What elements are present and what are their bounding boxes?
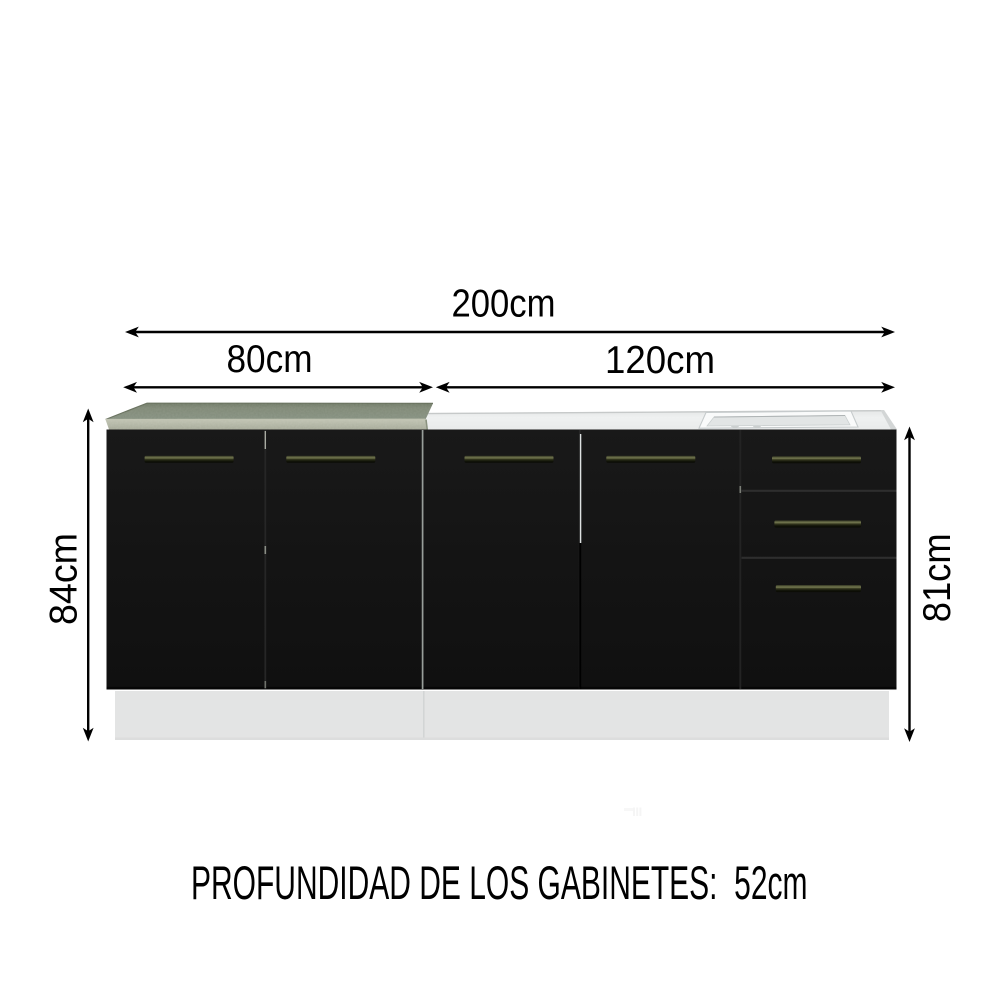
- svg-text:84cm: 84cm: [43, 533, 86, 625]
- svg-text:120cm: 120cm: [605, 339, 715, 382]
- svg-text:PROFUNDIDAD DE LOS GABINETES:: PROFUNDIDAD DE LOS GABINETES: 52cm: [191, 857, 808, 910]
- svg-text:80cm: 80cm: [227, 338, 313, 381]
- svg-text:81cm: 81cm: [916, 533, 959, 622]
- svg-text:200cm: 200cm: [452, 283, 556, 326]
